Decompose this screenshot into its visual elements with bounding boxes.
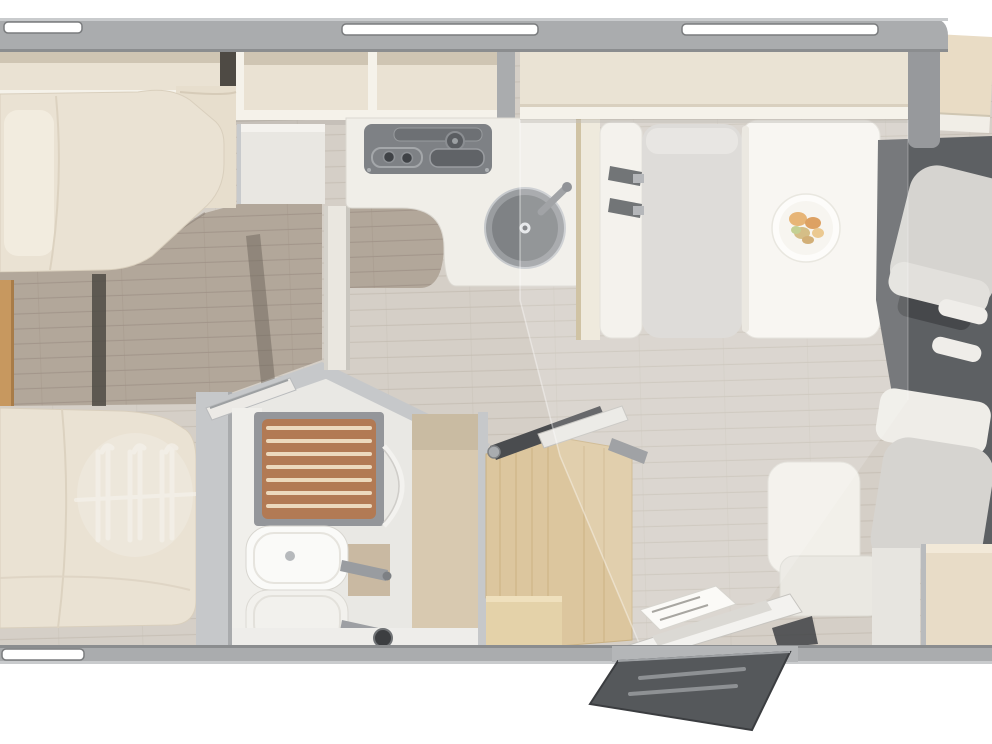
cab-entry-box	[926, 544, 992, 646]
floorplan-canvas	[0, 0, 992, 744]
cabinet-divider	[236, 52, 244, 120]
motorhome-floorplan-render	[0, 0, 992, 744]
wall-highlight	[0, 18, 948, 21]
cabinet-end-panel	[497, 48, 515, 122]
tall-unit-edge	[237, 124, 241, 204]
entry-step-inside	[486, 596, 562, 646]
window-top-middle	[342, 24, 538, 35]
ladder-edge	[11, 280, 14, 406]
partition-edge	[324, 206, 328, 370]
tall-unit-top	[237, 124, 325, 204]
washbasin	[246, 526, 348, 590]
basin-drain	[285, 551, 295, 561]
window-bottom-left	[2, 649, 84, 660]
cabinet-divider	[368, 52, 377, 120]
cooktop	[364, 124, 492, 174]
faucet-spout	[383, 572, 392, 581]
wall-edge	[228, 392, 232, 648]
drop-bed-frame-right	[908, 38, 940, 148]
drop-bed-panel	[520, 46, 908, 114]
pillow	[4, 110, 54, 256]
washroom-left-wall	[196, 392, 232, 648]
tv-hinge	[488, 446, 500, 458]
teak-slats	[268, 428, 370, 506]
screw	[367, 168, 371, 172]
toilet-bench-shade	[412, 414, 478, 450]
window-top-right	[682, 24, 878, 35]
cabinet-shade	[377, 52, 497, 65]
kitchen-floor-pocket	[348, 206, 444, 288]
pot-stand-center	[452, 138, 458, 144]
single-bed-bottom	[0, 408, 196, 628]
under-bed-slot	[92, 274, 106, 406]
round-drain-hole	[374, 629, 392, 647]
entry-box-lip	[926, 544, 992, 553]
cabinet-shade	[236, 52, 368, 65]
screw	[485, 168, 489, 172]
cooktop-grille	[394, 128, 482, 141]
burner-tray	[430, 149, 484, 167]
burner-knob	[402, 153, 413, 164]
burner-knob	[384, 152, 395, 163]
cabinet-shade	[0, 52, 220, 63]
step-highlight	[486, 596, 562, 602]
partition-edge	[346, 206, 350, 370]
tall-unit-lip	[237, 124, 325, 132]
window-top-left	[4, 22, 82, 33]
cab-floor-edge	[872, 548, 920, 646]
drop-bed-seam	[520, 104, 908, 107]
wall-inner-edge	[0, 49, 948, 52]
wall-highlight	[0, 661, 992, 664]
drop-bed-lip	[520, 107, 908, 119]
lower-margin	[0, 664, 992, 744]
wall-inner-edge	[0, 645, 992, 648]
